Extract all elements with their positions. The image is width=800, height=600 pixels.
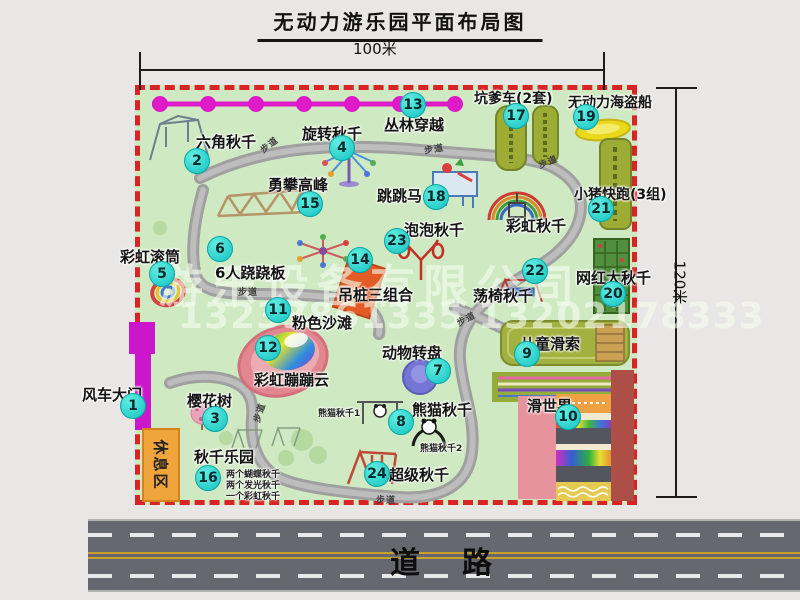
item-label-23: 泡泡秋千 [404,219,464,240]
rest-area: 休息区 [142,428,180,502]
item-label-15: 勇攀高峰 [268,174,328,195]
item-badge-3: 3 [202,406,228,432]
trail-label-6: 步道 [376,493,396,506]
trail-label-4: 步道 [238,285,258,298]
item-label-8: 熊猫秋千 [412,399,472,420]
item-badge-22: 22 [522,258,548,284]
page-title: 无动力游乐园平面布局图 [258,6,543,42]
item-label-14: 吊桩三组合 [338,284,413,305]
item-label-11: 粉色沙滩 [292,312,352,333]
item-label-16: 秋千乐园 [194,446,254,467]
screenshot-canvas: 无动力游乐园平面布局图 [0,0,800,600]
road: 道 路 [88,519,800,592]
item-label-21: 小猪快跑(3组) [574,184,667,204]
item-badge-14: 14 [347,247,373,273]
rest-area-label: 休息区 [151,439,172,490]
item-badge-9: 9 [514,341,540,367]
item-label-6: 6人跷跷板 [215,262,285,283]
item-badge-19: 19 [573,104,599,130]
item-label-22: 荡椅秋千 [473,285,533,306]
item-badge-12: 12 [255,335,281,361]
item-badge-16: 16 [195,465,221,491]
road-dash-line-top [88,533,800,537]
item-badge-15: 15 [297,191,323,217]
item-badge-21: 21 [588,196,614,222]
item-badge-18: 18 [423,184,449,210]
item-badge-23: 23 [384,228,410,254]
item-badge-5: 5 [149,261,175,287]
height-dimension-label: 120米 [669,261,690,305]
item-badge-10: 10 [555,404,581,430]
item-badge-24: 24 [364,461,390,487]
item-badge-6: 6 [207,236,233,262]
item-badge-2: 2 [184,148,210,174]
item-label-24: 超级秋千 [389,464,449,485]
item-badge-7: 7 [425,358,451,384]
rainbow-swing-label: 彩虹秋千 [506,215,566,236]
item-badge-13: 13 [400,92,426,118]
swing-park-detail-3: 一个彩虹秋千 [226,489,280,502]
width-dimension-label: 100米 [353,38,397,59]
item-badge-20: 20 [600,281,626,307]
item-badge-17: 17 [503,103,529,129]
item-badge-8: 8 [388,409,414,435]
item-label-18: 跳跳马 [377,185,422,206]
item-label-2: 六角秋千 [196,131,256,152]
item-badge-1: 1 [120,393,146,419]
panda-swing-2-label: 熊猫秋千2 [420,441,462,454]
item-badge-4: 4 [329,135,355,161]
item-label-12: 彩虹蹦蹦云 [254,369,329,390]
item-badge-11: 11 [265,297,291,323]
panda-swing-1-label: 熊猫秋千1 [318,406,360,419]
road-label: 道 路 [88,538,800,582]
